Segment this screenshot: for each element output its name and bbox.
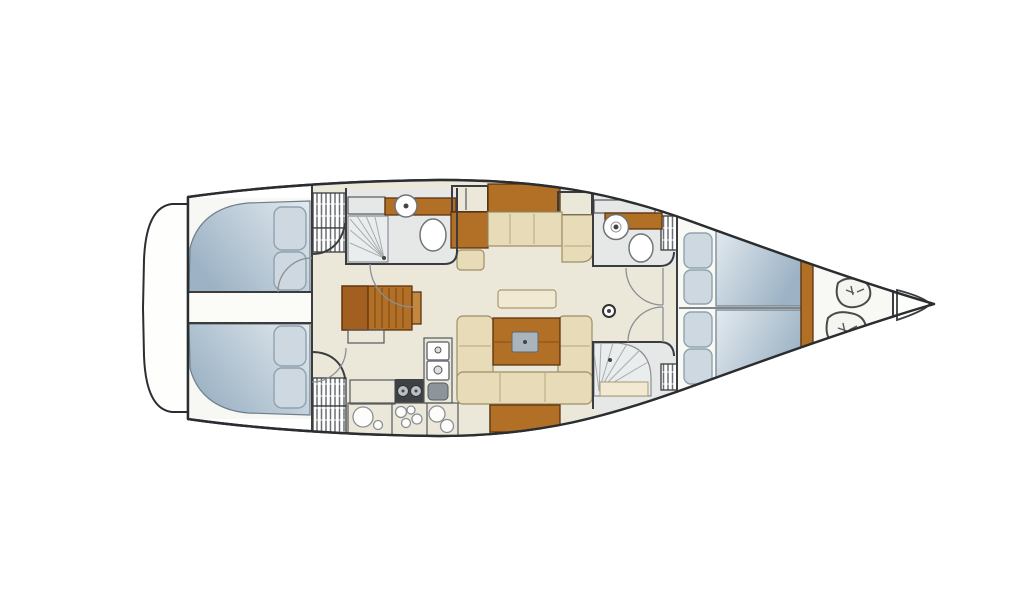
pillow-icon [274,207,306,250]
locker-louver-icon [661,216,677,250]
pillow-icon [684,270,712,304]
pillow-icon [274,368,306,408]
faucet-icon [434,366,442,374]
bench [498,290,556,308]
burner-icon [402,419,411,428]
burner-icon [412,414,422,424]
locker-louver-icon [661,364,677,390]
burner-icon [407,406,415,414]
sideboard [488,184,560,212]
sail-bag-icon [827,312,867,347]
drain-icon [382,256,386,260]
pillow-icon [684,233,712,268]
yacht-floor-plan-page [0,0,1024,600]
table-pedestal-icon [523,340,527,344]
toilet-icon [420,219,446,251]
engine-space [188,292,312,323]
swim-platform [143,204,188,412]
faucet-icon [614,225,619,230]
sink-icon [374,421,383,430]
vberth-bottom [716,310,801,389]
faucet-icon [404,204,409,209]
burner-dot [402,390,405,393]
cutting-board [428,383,448,400]
sink-icon [429,406,445,422]
mast [603,305,615,317]
burner-dot [415,390,418,393]
vberth-top [716,227,801,306]
locker-louver-icon [313,378,346,406]
mast-dot [607,309,611,313]
handrail [412,292,421,324]
faucet-icon [435,347,441,353]
settee-cushion [457,372,592,404]
drain-icon [608,358,612,362]
shower-seat [600,382,648,396]
stool [457,250,484,270]
companionway-side [342,286,368,330]
pillow-icon [684,312,712,347]
settee-cushion [488,212,562,246]
forward-cabin-floor [677,180,893,438]
pillow-icon [684,349,712,384]
locker-louver-icon [313,406,346,434]
pillow-icon [274,326,306,366]
yacht-floor-plan [0,0,1024,600]
toilet-icon [629,234,653,262]
burner-icon [396,407,407,418]
sink-icon [353,407,373,427]
settee-cushion [562,215,593,262]
locker-louver-icon [313,193,346,228]
sink-icon [441,420,454,433]
